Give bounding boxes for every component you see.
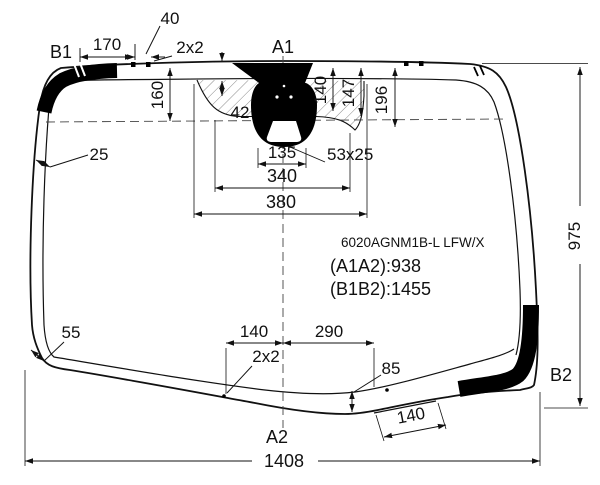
spec-a1a2: (A1A2):938 bbox=[330, 256, 421, 276]
dim-170: 170 bbox=[93, 35, 121, 54]
dim-25: 25 bbox=[90, 145, 109, 164]
dim-140-bottom: 140 bbox=[240, 322, 268, 341]
part-code: 6020AGNM1B-L LFW/X bbox=[341, 235, 485, 250]
dim-147: 147 bbox=[339, 79, 358, 107]
dim-160: 160 bbox=[148, 81, 167, 109]
dim-2x2-top: 2x2 bbox=[176, 38, 203, 57]
point-a2: A2 bbox=[266, 427, 288, 447]
windshield-dimension-diagram: 170 40 2x2 160 42 140 147 196 25 135 53x… bbox=[0, 0, 600, 485]
dim-85: 85 bbox=[382, 359, 401, 378]
dim-975: 975 bbox=[565, 222, 584, 250]
dim-380: 380 bbox=[266, 192, 296, 212]
dim-40: 40 bbox=[161, 9, 180, 28]
dim-1408: 1408 bbox=[264, 451, 304, 471]
dim-42: 42 bbox=[231, 103, 250, 122]
dim-2x2-bottom: 2x2 bbox=[252, 347, 279, 366]
diagram-canvas: 170 40 2x2 160 42 140 147 196 25 135 53x… bbox=[0, 0, 600, 485]
point-b1: B1 bbox=[50, 42, 72, 62]
dim-140-mirror: 140 bbox=[311, 76, 330, 104]
dim-53x25: 53x25 bbox=[327, 145, 373, 164]
spec-b1b2: (B1B2):1455 bbox=[330, 279, 431, 299]
dim-196: 196 bbox=[372, 86, 391, 114]
dim-140-step: 140 bbox=[395, 404, 426, 428]
dim-340: 340 bbox=[267, 166, 297, 186]
dim-55: 55 bbox=[62, 323, 81, 342]
point-a1: A1 bbox=[272, 37, 294, 57]
point-b2: B2 bbox=[550, 365, 572, 385]
dim-135: 135 bbox=[268, 143, 296, 162]
sensor-window bbox=[267, 121, 302, 142]
dim-290: 290 bbox=[315, 322, 343, 341]
